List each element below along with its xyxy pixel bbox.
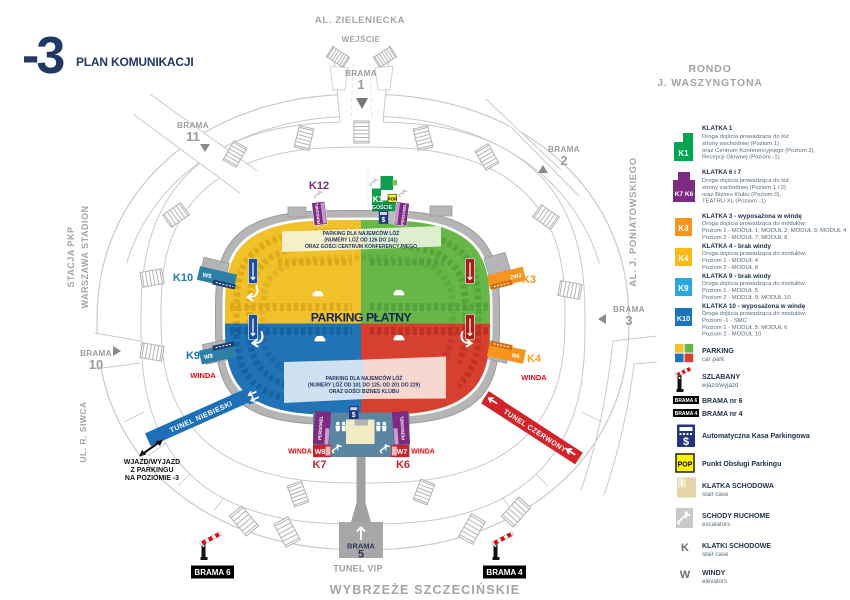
svg-text:UL. R. SIWCA: UL. R. SIWCA [78,401,88,462]
svg-text:Z PARKINGU: Z PARKINGU [130,467,173,474]
svg-text:Droga dojścia prowadząca do ló: Droga dojścia prowadząca do lóż [702,134,789,140]
svg-text:Droga dojścia prowadząca do mo: Droga dojścia prowadząca do modułów: [702,221,807,227]
svg-text:car park: car park [702,356,725,363]
svg-text:Poziom 2 - MODUŁ 10: Poziom 2 - MODUŁ 10 [702,332,762,338]
svg-text:Poziom -1 - SMC: Poziom -1 - SMC [702,318,748,324]
svg-text:STACJA PKP: STACJA PKP [66,226,76,287]
svg-text:WYBRZEŻE SZCZECIŃSKIE: WYBRZEŻE SZCZECIŃSKIE [330,582,520,597]
svg-text:KLATKA 4 - brak windy: KLATKA 4 - brak windy [702,243,771,250]
svg-text:KLATKA SCHODOWA: KLATKA SCHODOWA [702,483,774,490]
svg-text:Recepcji Głównej (Poziom -1): Recepcji Głównej (Poziom -1) [702,155,780,161]
svg-text:stair case: stair case [702,551,729,558]
svg-text:W8: W8 [315,449,326,456]
svg-text:Poziom 1 - MODUŁ 1; MODUŁ 2; M: Poziom 1 - MODUŁ 1; MODUŁ 2; MODUŁ 3; MO… [702,228,847,234]
svg-text:$: $ [352,412,356,419]
svg-text:BRAMA 4: BRAMA 4 [486,568,523,577]
svg-text:RONDO: RONDO [688,63,731,75]
svg-text:K12: K12 [309,180,329,192]
svg-text:wjazd/wyjazd: wjazd/wyjazd [701,382,739,389]
svg-text:WINDA: WINDA [411,449,435,456]
svg-text:$: $ [382,217,386,224]
svg-text:K4: K4 [527,353,542,365]
svg-text:11: 11 [186,129,200,144]
svg-text:Poziom 2 - MODUŁ 7; MODUŁ 8: Poziom 2 - MODUŁ 7; MODUŁ 8 [702,235,788,241]
svg-text:Poziom 2 - MODUŁ 9; MODUŁ 10: Poziom 2 - MODUŁ 9; MODUŁ 10 [702,295,791,301]
svg-text:W: W [680,569,691,581]
svg-text:KLATKA 6 i 7: KLATKA 6 i 7 [702,169,742,176]
svg-text:K10: K10 [173,272,193,284]
svg-text:K7: K7 [312,459,326,471]
svg-text:SCHODY RUCHOME: SCHODY RUCHOME [702,513,770,520]
svg-text:K7 K6: K7 K6 [675,191,694,198]
svg-text:AL. ZIELENIECKA: AL. ZIELENIECKA [315,15,405,26]
svg-text:Droga dojścia prowadząca do mo: Droga dojścia prowadząca do modułów: [702,251,807,257]
svg-text:Droga dojścia prowadząca do mo: Droga dojścia prowadząca do modułów: [702,311,807,317]
svg-text:strony wschodniej (Poziom 1): strony wschodniej (Poziom 1) [702,141,779,147]
svg-text:KLATKA 1: KLATKA 1 [702,125,733,132]
svg-text:Poziom 1 - MODUŁ 5; MODUŁ 6: Poziom 1 - MODUŁ 5; MODUŁ 6 [702,325,788,331]
svg-text:NA POZIOMIE -3: NA POZIOMIE -3 [125,475,179,482]
svg-text:SZLABANY: SZLABANY [702,374,740,381]
svg-text:elevators: elevators [702,578,727,585]
svg-text:ORAZ GOŚCI CENTRUM KONFERENCYJ: ORAZ GOŚCI CENTRUM KONFERENCYJNEGO [305,243,417,250]
svg-text:K1: K1 [373,195,384,204]
svg-text:J. WASZYNGTONA: J. WASZYNGTONA [657,77,763,89]
svg-text:K6: K6 [396,459,410,471]
svg-text:(NUMERY LÓŻ OD 126 DO 141): (NUMERY LÓŻ OD 126 DO 141) [324,236,398,244]
svg-text:WINDY: WINDY [702,570,726,577]
svg-text:TEATRU XL (Poziom -1): TEATRU XL (Poziom -1) [702,199,766,205]
svg-text:BRAMA 6: BRAMA 6 [675,398,698,404]
svg-text:oraz Biznes Klubu (Poziom 0),: oraz Biznes Klubu (Poziom 0), [702,192,782,198]
svg-text:stair case: stair case [702,491,729,498]
svg-text:1: 1 [357,77,364,92]
svg-text:K4: K4 [678,254,689,263]
svg-text:K10: K10 [677,314,690,323]
svg-text:10: 10 [89,357,103,372]
svg-text:WEJŚCIE: WEJŚCIE [342,35,381,44]
svg-text:K3: K3 [678,224,689,233]
svg-text:Poziom 1 - MODUŁ 5: Poziom 1 - MODUŁ 5 [702,288,759,294]
svg-text:2: 2 [560,153,567,168]
svg-text:K3: K3 [522,274,536,286]
svg-text:WARSZAWA STADION: WARSZAWA STADION [80,206,90,309]
svg-text:W7: W7 [397,449,408,456]
svg-text:KLATKA 9 - brak windy: KLATKA 9 - brak windy [702,273,771,280]
svg-text:K: K [681,542,689,554]
svg-text:-3: -3 [22,27,64,85]
svg-text:Automatyczna Kasa Parkingowa: Automatyczna Kasa Parkingowa [702,433,810,440]
svg-text:5: 5 [358,549,364,561]
svg-text:K9: K9 [678,284,689,293]
svg-text:PARKING: PARKING [702,348,734,355]
svg-text:PLAN KOMUNIKACJI: PLAN KOMUNIKACJI [76,55,193,69]
svg-text:WINDA: WINDA [521,373,547,382]
svg-text:oraz Centrum Konferencyjnego (: oraz Centrum Konferencyjnego (Poziom 2), [702,148,816,154]
svg-text:GOŚCIE: GOŚCIE [372,204,393,211]
svg-text:KLATKI SCHODOWE: KLATKI SCHODOWE [702,543,771,550]
svg-text:(NUMERY LÓŻ OD 101 DO 125, OD: (NUMERY LÓŻ OD 101 DO 125, OD 201 DO 229… [308,381,420,389]
svg-text:TUNEL VIP: TUNEL VIP [333,564,383,574]
svg-text:ORAZ GOŚCI BIZNES KLUBU: ORAZ GOŚCI BIZNES KLUBU [329,388,400,395]
svg-text:$: $ [683,436,689,448]
svg-text:AL. J. PONIATOWSKIEGO: AL. J. PONIATOWSKIEGO [628,157,639,286]
svg-text:WINDA: WINDA [190,371,216,380]
svg-text:Droga dojścia prowadząca do mo: Droga dojścia prowadząca do modułów: [702,281,807,287]
svg-text:Poziom 1 - MODUŁ 4: Poziom 1 - MODUŁ 4 [702,258,759,264]
svg-text:Punkt Obsługi Parkingu: Punkt Obsługi Parkingu [702,461,781,468]
svg-text:PARKING PŁATNY: PARKING PŁATNY [311,311,412,325]
svg-text:3: 3 [625,313,632,328]
svg-text:PARKING DLA NAJEMCÓW LÓŻ: PARKING DLA NAJEMCÓW LÓŻ [323,229,400,237]
svg-text:WINDA: WINDA [288,449,312,456]
svg-text:BRAMA 4: BRAMA 4 [675,411,698,417]
svg-text:POP: POP [678,462,693,469]
svg-text:WJAZD/WYJAZD: WJAZD/WYJAZD [124,459,180,466]
svg-text:BRAMA 6: BRAMA 6 [194,568,231,577]
svg-text:BRAMA nr 6: BRAMA nr 6 [702,398,743,405]
svg-text:escalators: escalators [702,521,730,528]
svg-text:Poziom 2 - MODUŁ 8: Poziom 2 - MODUŁ 8 [702,265,759,271]
svg-text:PARKING DLA NAJEMCÓW LÓŻ: PARKING DLA NAJEMCÓW LÓŻ [326,374,403,382]
svg-text:KLATKA 3 - wyposażona w windę: KLATKA 3 - wyposażona w windę [702,213,802,220]
svg-text:POP: POP [387,196,397,201]
svg-text:KLATKA 10 - wyposażona w windę: KLATKA 10 - wyposażona w windę [702,303,806,310]
svg-text:Droga dojścia prowadząca do ló: Droga dojścia prowadząca do lóż [702,178,789,184]
svg-text:BRAMA nr 4: BRAMA nr 4 [702,411,743,418]
svg-text:K9: K9 [186,350,200,362]
svg-text:strony zachodniej (Poziom 1 i: strony zachodniej (Poziom 1 i 2) [702,185,786,191]
svg-text:K1: K1 [678,149,689,158]
